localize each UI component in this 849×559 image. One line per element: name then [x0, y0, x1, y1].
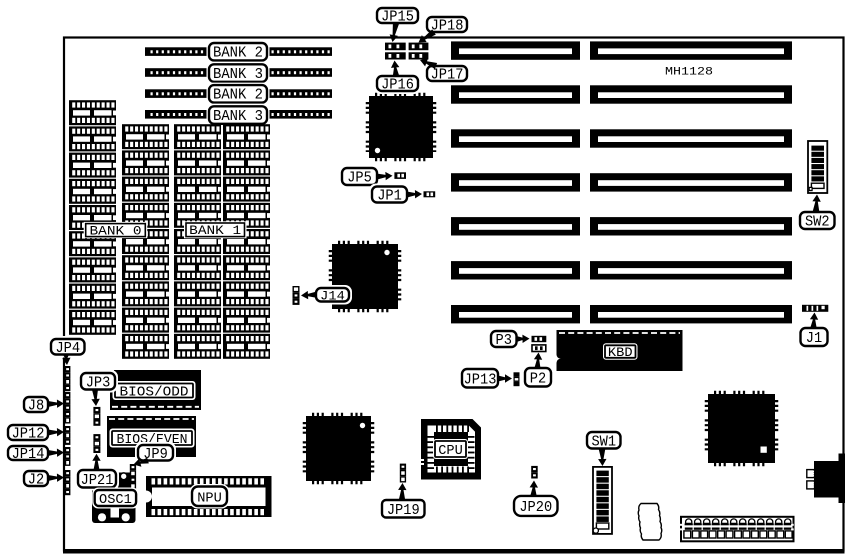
- svg-text:J14: J14: [320, 288, 345, 303]
- svg-text:P2: P2: [530, 372, 546, 388]
- svg-text:JP12: JP12: [12, 427, 45, 443]
- svg-text:BIOS/ODD: BIOS/ODD: [120, 385, 189, 400]
- svg-text:KBD: KBD: [608, 345, 633, 360]
- svg-text:MH1128: MH1128: [665, 67, 713, 79]
- svg-text:NPU: NPU: [197, 490, 222, 506]
- svg-text:BANK 1: BANK 1: [189, 223, 241, 238]
- svg-text:JP14: JP14: [12, 447, 45, 463]
- svg-text:OSC1: OSC1: [99, 492, 132, 508]
- svg-text:SW1: SW1: [591, 435, 616, 451]
- svg-text:JP16: JP16: [381, 78, 414, 94]
- svg-text:JP5: JP5: [347, 171, 372, 187]
- svg-text:JP17: JP17: [431, 68, 464, 84]
- svg-text:BANK 3: BANK 3: [213, 108, 263, 125]
- svg-text:BANK 3: BANK 3: [213, 66, 263, 83]
- svg-text:JP20: JP20: [519, 500, 552, 516]
- svg-text:JP3: JP3: [86, 376, 111, 392]
- svg-text:JP1: JP1: [377, 189, 402, 205]
- svg-text:JP13: JP13: [464, 373, 497, 389]
- svg-text:JP18: JP18: [431, 19, 464, 35]
- svg-text:P3: P3: [496, 333, 512, 349]
- svg-text:CPU: CPU: [438, 443, 463, 459]
- svg-text:J1: J1: [806, 331, 822, 347]
- svg-text:SW2: SW2: [805, 215, 830, 231]
- svg-text:J8: J8: [28, 399, 44, 415]
- svg-text:JP21: JP21: [81, 473, 114, 489]
- svg-text:BANK 0: BANK 0: [90, 223, 142, 238]
- svg-text:BANK 2: BANK 2: [213, 45, 263, 62]
- svg-text:JP19: JP19: [387, 503, 420, 519]
- svg-text:BANK 2: BANK 2: [213, 87, 263, 104]
- svg-text:J2: J2: [28, 473, 44, 489]
